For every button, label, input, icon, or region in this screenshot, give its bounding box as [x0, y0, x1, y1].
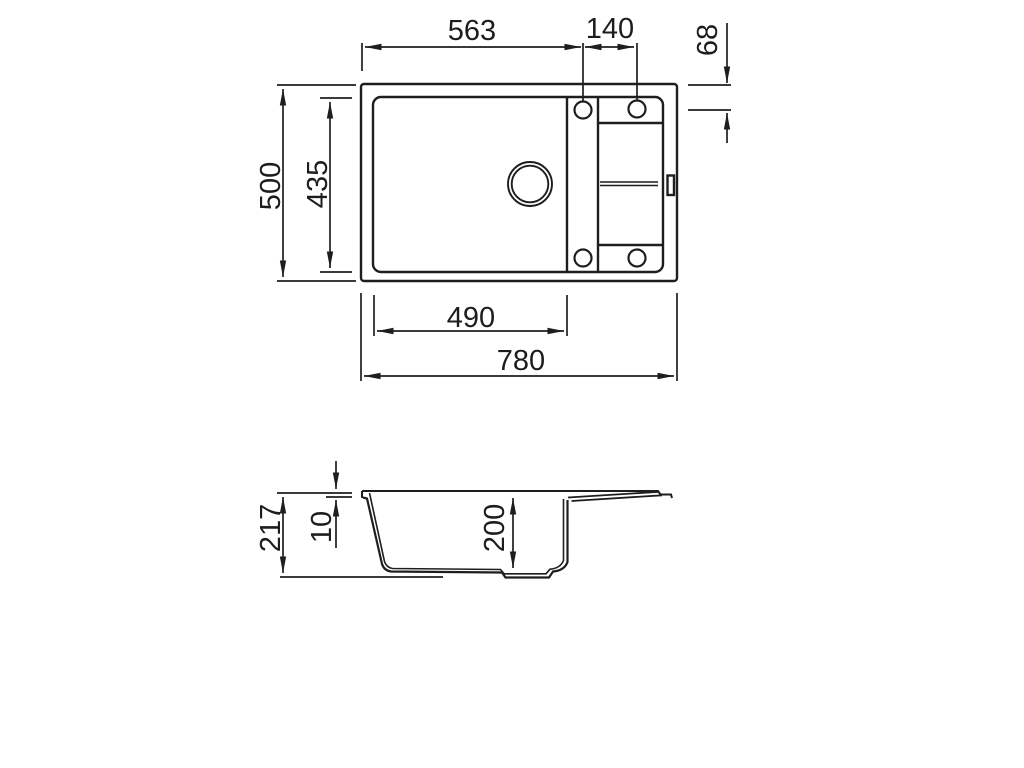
overflow-slot — [668, 176, 675, 196]
dim-label-overall-height: 217 — [255, 504, 287, 552]
dim-label-tap-offset-y: 68 — [692, 24, 724, 56]
tap-hole-top-right — [629, 101, 646, 118]
drain-opening-outer — [508, 162, 552, 206]
dim-label-rim-height: 10 — [306, 511, 338, 543]
drain-opening-inner — [512, 166, 549, 203]
dim-label-tap-spacing: 140 — [586, 13, 634, 45]
tap-hole-top-left — [575, 102, 592, 119]
top-view — [361, 84, 677, 281]
bowl-profile-inner — [370, 493, 564, 574]
sink-technical-drawing: 563 140 68 500 435 490 780 217 10 200 — [0, 0, 1024, 768]
side-view — [362, 491, 672, 578]
technical-drawing-page: 563 140 68 500 435 490 780 217 10 200 — [0, 0, 1024, 768]
tap-hole-bottom-left — [575, 250, 592, 267]
dim-label-overall-width: 780 — [497, 345, 545, 377]
dim-label-bowl-inner-depth: 200 — [479, 504, 511, 552]
dim-label-bowl-depth: 435 — [302, 160, 334, 208]
bowl-profile-outer — [363, 498, 568, 578]
dim-label-overall-depth: 500 — [255, 162, 287, 210]
tap-hole-bottom-right — [629, 250, 646, 267]
dim-label-bowl-width: 490 — [447, 302, 495, 334]
dim-label-tap-offset-x: 563 — [448, 15, 496, 47]
